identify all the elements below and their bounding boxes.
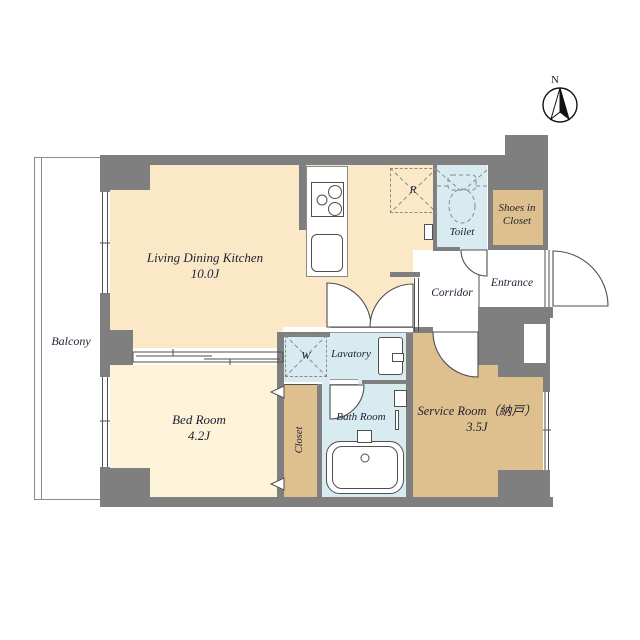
entrance-door-opening (543, 250, 553, 307)
shower-mixer (394, 390, 407, 407)
wall-panel (424, 224, 433, 240)
ldk-area: 10.0J (147, 266, 263, 282)
vanity-handle (392, 353, 404, 362)
wall-segment (102, 468, 150, 497)
partition-sliding-doors (133, 348, 283, 365)
bath-room-label: Bath Room (336, 410, 385, 424)
washer-marker: W (301, 349, 310, 363)
wall-segment (498, 365, 550, 377)
bedroom-label: Bed Room (172, 412, 226, 428)
shoes-closet-label-block: Shoes in Closet (499, 202, 536, 228)
refrigerator-marker: R (410, 183, 417, 197)
wall-segment (406, 333, 413, 497)
wall-segment (498, 470, 550, 497)
window-service-east (543, 392, 550, 470)
service-room-label: Service Room（納戸） (417, 403, 536, 419)
service-room-area: 3.5J (417, 419, 536, 435)
wall-segment (299, 165, 306, 230)
shoes-closet-label-line1: Shoes in (499, 202, 536, 215)
bedroom-area: 4.2J (172, 428, 226, 444)
wall-segment (362, 380, 406, 384)
wall-segment (110, 330, 133, 365)
wall-segment (478, 307, 553, 318)
entrance-door (553, 251, 608, 306)
wall-segment (277, 332, 284, 497)
wall-segment (413, 327, 433, 333)
balcony-label: Balcony (51, 334, 90, 348)
wall-segment (478, 318, 523, 365)
shoes-closet-label-line2: Closet (499, 215, 536, 228)
wall-segment (433, 247, 460, 251)
wall-segment (317, 384, 322, 497)
window-ldk-west (100, 192, 110, 293)
wall-segment (390, 272, 420, 277)
doorway-sill-bath (330, 379, 358, 385)
balcony-outline (35, 157, 101, 500)
wall-segment (543, 190, 548, 250)
shower-bar (395, 410, 399, 430)
entrance-label: Entrance (491, 276, 533, 290)
wall-segment (100, 155, 505, 165)
floorplan: Living Dining Kitchen 10.0J Bed Room 4.2… (0, 0, 640, 640)
doorway-sill-ldk-lavatory (330, 327, 413, 333)
lavatory-label: Lavatory (331, 347, 371, 361)
north-label: N (551, 73, 559, 87)
wall-segment (488, 160, 548, 190)
wall-segment (100, 293, 110, 377)
ldk-label-block: Living Dining Kitchen 10.0J (147, 250, 263, 282)
pipe-space-box (522, 322, 548, 365)
corridor-label: Corridor (431, 286, 473, 300)
room-living-dining-kitchen (110, 165, 433, 327)
closet-label: Closet (293, 427, 307, 454)
north-compass (543, 88, 577, 122)
window-bedroom-west (100, 377, 110, 467)
bath-counter-step (357, 430, 372, 443)
wall-segment (488, 190, 493, 250)
kitchen-sink (311, 234, 343, 272)
toilet-label: Toilet (450, 225, 475, 239)
stove (311, 182, 344, 217)
wall-segment (488, 245, 548, 250)
bathtub-inner (332, 446, 398, 489)
bedroom-label-block: Bed Room 4.2J (172, 412, 226, 444)
wall-segment (100, 497, 553, 507)
ldk-label: Living Dining Kitchen (147, 250, 263, 266)
wall-segment (100, 165, 110, 192)
service-room-label-block: Service Room（納戸） 3.5J (417, 403, 536, 435)
